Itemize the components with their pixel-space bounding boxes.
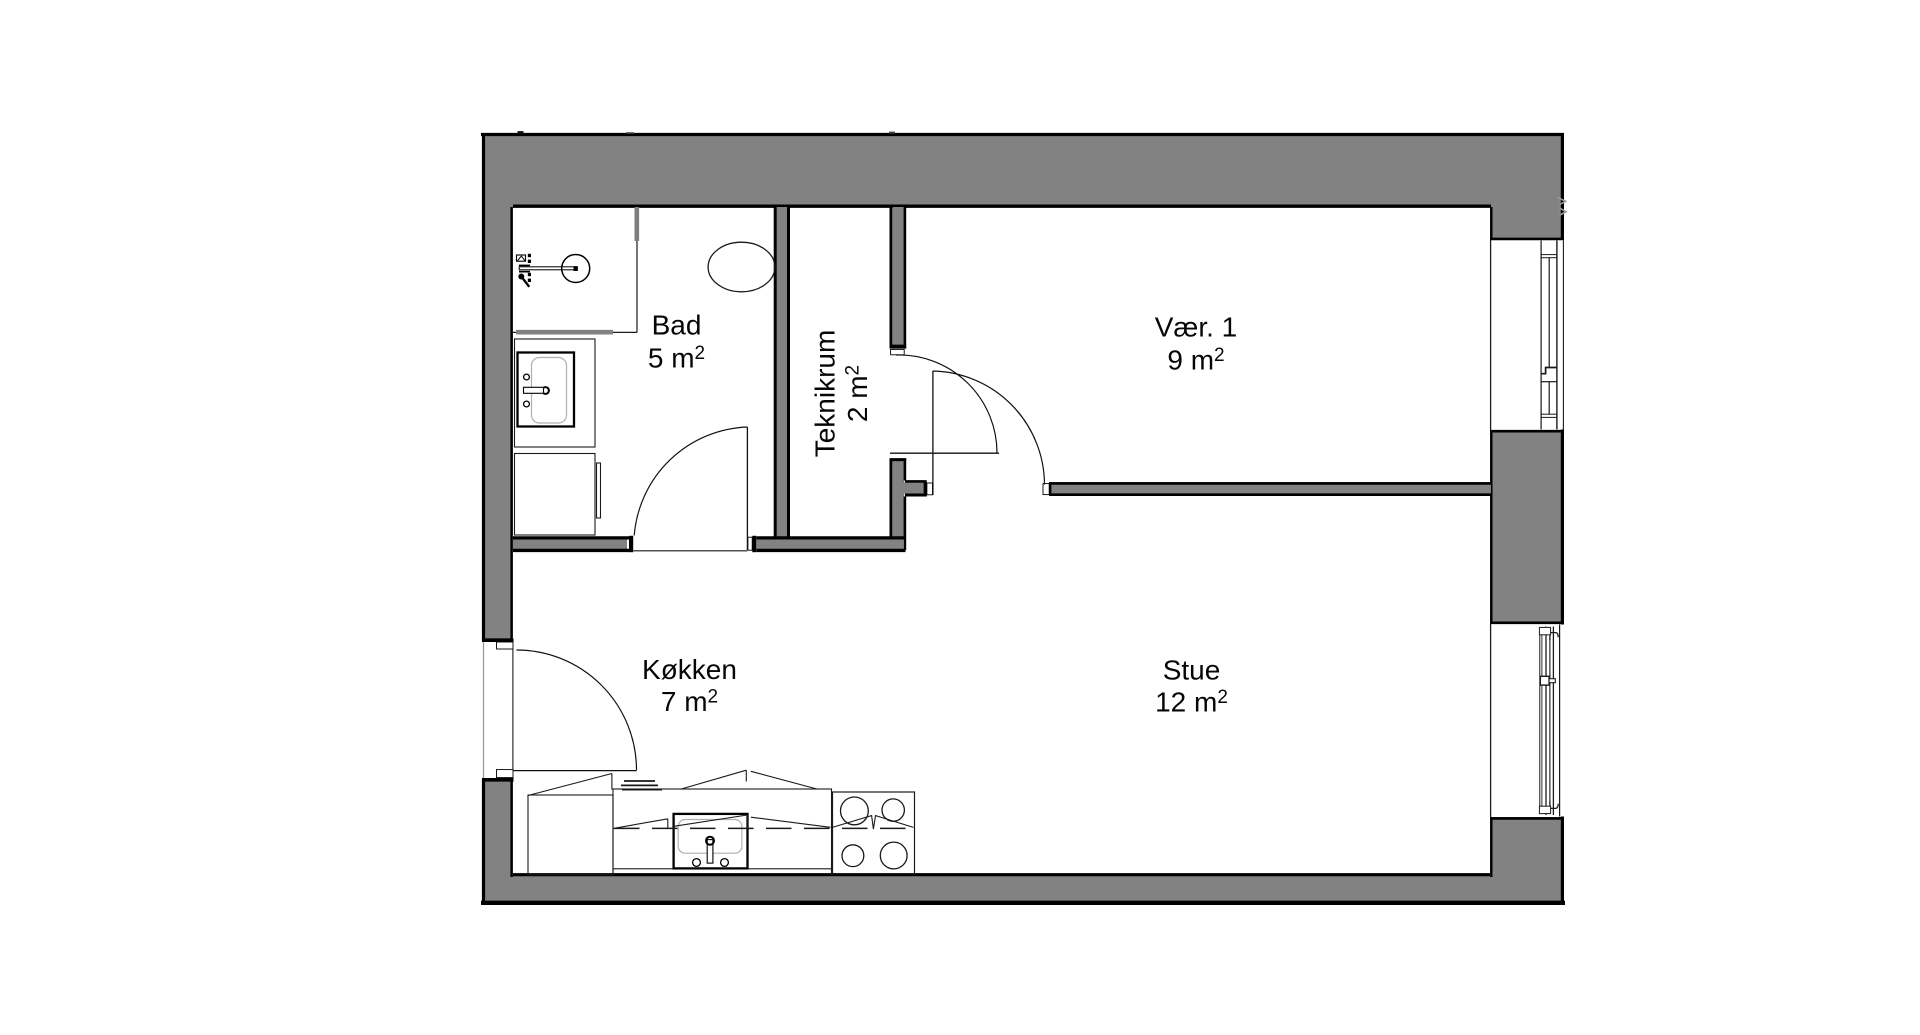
svg-text:Køkken: Køkken [642, 654, 737, 685]
svg-text:Teknikrum: Teknikrum [810, 330, 841, 458]
svg-text:Bad: Bad [652, 310, 702, 341]
svg-text:Stue: Stue [1163, 655, 1221, 686]
svg-text:12 m2: 12 m2 [1155, 687, 1228, 718]
svg-text:Vær. 1: Vær. 1 [1155, 311, 1237, 342]
